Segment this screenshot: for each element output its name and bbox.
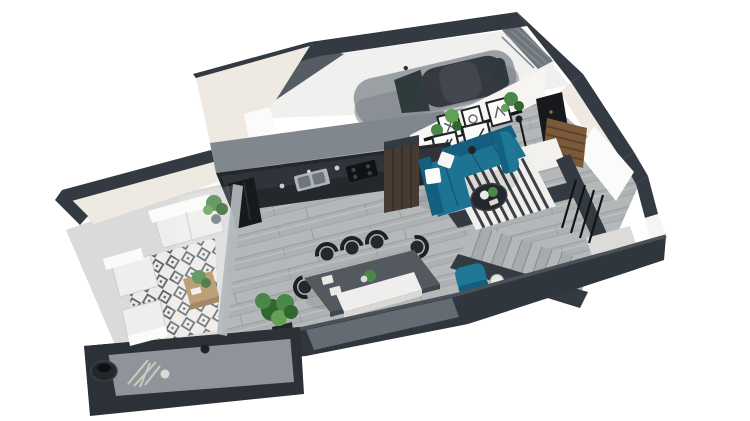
floorplan-svg	[0, 0, 750, 421]
floorplan-render	[0, 0, 750, 421]
plant-leaf	[514, 101, 524, 111]
vase-opening	[97, 364, 111, 373]
counter-item	[335, 166, 340, 171]
centerpiece-bowl	[361, 276, 368, 283]
sofa-tray	[468, 146, 476, 154]
counter-item	[280, 184, 285, 189]
plant-leaf	[452, 121, 462, 131]
ledge-knob	[201, 345, 210, 354]
plant-leaf	[501, 104, 509, 112]
wardrobe-item	[549, 110, 552, 113]
plant-leaf	[445, 109, 459, 123]
plant-leaf	[284, 305, 298, 319]
decor-bowl	[161, 370, 170, 379]
plant-leaf	[255, 293, 271, 309]
wood-accent-panel	[384, 135, 419, 213]
sofa-pillow	[425, 168, 442, 185]
decor-vase	[91, 361, 117, 381]
east-wall-band-2	[636, 176, 658, 218]
lamp-head	[516, 116, 523, 123]
